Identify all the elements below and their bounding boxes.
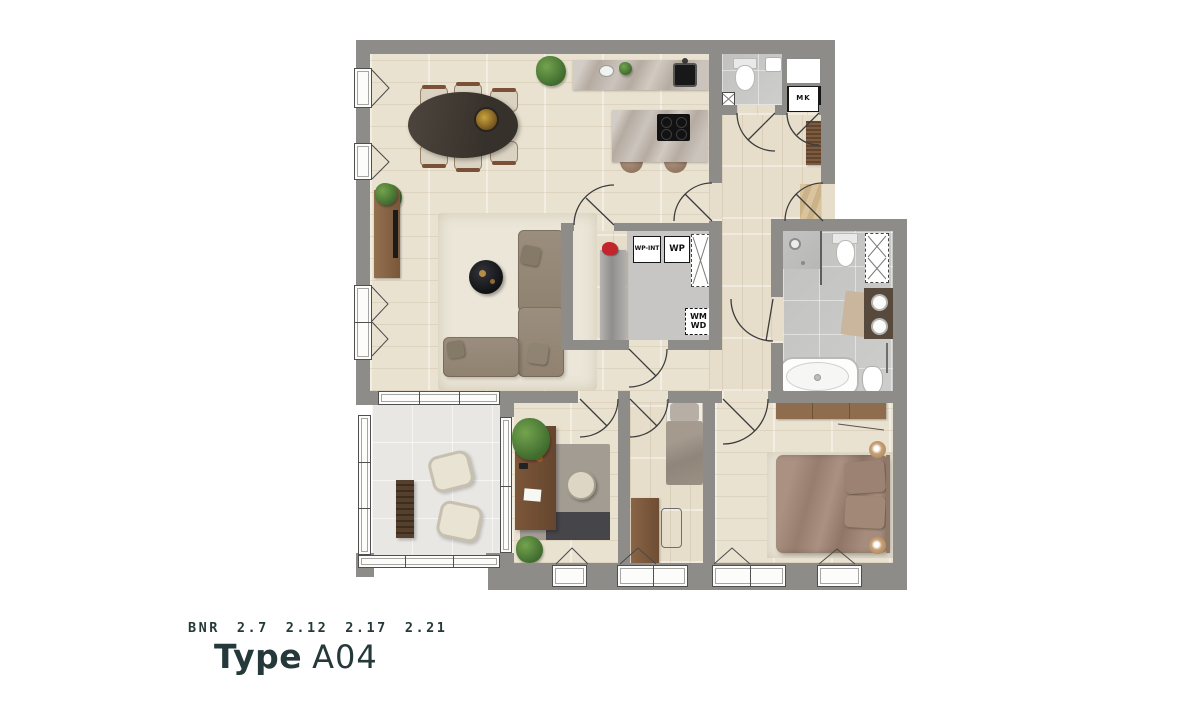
- sofa-pillow: [446, 340, 465, 359]
- door-opening-floor: [578, 391, 618, 403]
- dryer-label: WD: [691, 322, 706, 330]
- wall-corridor-south: [668, 391, 722, 403]
- window-office: [552, 565, 587, 587]
- plant: [619, 62, 632, 75]
- door-opening-floor: [771, 297, 783, 343]
- office-west-glazing: [500, 417, 512, 553]
- type-label: Type: [214, 637, 302, 676]
- balcony-glazing-left: [358, 415, 371, 555]
- office-west-stub: [500, 403, 514, 417]
- wall-bathroom-west: [771, 231, 783, 297]
- wall-toilet-bottom: [775, 105, 787, 115]
- bed-headboard: [886, 455, 890, 553]
- hall-closet: [786, 58, 821, 84]
- single-bed-duvet: [666, 421, 703, 485]
- floorplan: MK WP-INT WP WM WD: [0, 0, 1200, 724]
- wall-corridor-south: [618, 391, 630, 403]
- window-sash-divider: [750, 566, 751, 586]
- wall-bathroom-top: [771, 219, 907, 231]
- wall-living-hall-lower: [709, 221, 722, 350]
- wall-storage-north: [614, 223, 710, 231]
- bnr-number: 2.17: [345, 620, 388, 636]
- office-west-stub: [500, 553, 514, 567]
- towel-rail: [886, 343, 888, 373]
- window-sash-divider: [459, 392, 460, 404]
- balcony-bench: [396, 480, 414, 538]
- window-sash-divider: [359, 462, 370, 463]
- window-master-1: [712, 565, 786, 587]
- shower-drain: [801, 261, 805, 265]
- type-value: A04: [312, 638, 378, 676]
- balcony-glazing-bottom: [358, 555, 500, 568]
- coffee-table: [469, 260, 503, 294]
- kitchen-sink: [673, 63, 697, 87]
- bnr-line: BNR 2.7 2.12 2.17 2.21: [188, 620, 447, 636]
- wall-storage-north: [561, 223, 574, 231]
- bedroom2-desk: [631, 498, 659, 564]
- sofa-pillow: [527, 343, 550, 366]
- toilet-hand-basin: [765, 57, 782, 72]
- hob-burner: [661, 129, 672, 140]
- plant: [512, 418, 550, 460]
- entry-mat: [800, 184, 821, 220]
- duct-shaft: [691, 234, 710, 287]
- door-opening-floor: [722, 391, 768, 403]
- bathroom-shaft: [865, 233, 889, 283]
- heat-pump-indoor-label: WP-INT: [635, 246, 660, 252]
- front-door-opening-floor: [821, 184, 835, 221]
- washer-dryer-position: WM WD: [685, 308, 712, 335]
- wall-toilet-mk-separator: [782, 54, 787, 105]
- window-sash-divider: [405, 556, 406, 567]
- floorplan-page: MK WP-INT WP WM WD: [0, 0, 1200, 724]
- bed-pillow: [844, 495, 886, 529]
- meter-cupboard: MK: [786, 86, 821, 112]
- office-chair: [566, 470, 596, 500]
- window-sash-divider: [501, 486, 511, 487]
- wall-living-hall-upper: [709, 54, 722, 183]
- counter-appliance: [599, 65, 614, 77]
- bathtub-drain: [814, 374, 821, 381]
- balcony-post: [356, 391, 380, 405]
- window-sash-divider: [359, 508, 370, 509]
- window-sash-divider: [653, 566, 654, 586]
- bed-pillow: [844, 460, 886, 495]
- wall-toilet-bottom: [709, 105, 737, 115]
- window-bedroom2: [617, 565, 688, 587]
- wash-basin: [871, 294, 888, 311]
- desk-paper: [524, 488, 542, 501]
- wall-storage-west: [561, 223, 573, 350]
- sofa-pillow: [519, 244, 542, 267]
- shower-head: [789, 238, 801, 250]
- door-opening-floor: [709, 183, 722, 221]
- single-bed-pillow: [670, 403, 699, 422]
- wall-hall-east: [821, 54, 835, 184]
- tv-screen: [393, 210, 398, 258]
- wall-storage-south: [668, 340, 722, 350]
- door-opening-floor: [737, 105, 775, 115]
- heat-pump-indoor-unit: WP-INT: [633, 236, 661, 263]
- shower-glass-panel: [820, 231, 822, 285]
- plant: [375, 183, 397, 205]
- nightstand-lamp: [869, 537, 886, 554]
- dining-table: [408, 92, 518, 158]
- bnr-label: BNR: [188, 620, 220, 636]
- wall-top: [356, 40, 835, 54]
- window-left-3: [354, 285, 372, 360]
- toilet-bowl: [735, 65, 755, 91]
- window-sash-divider: [419, 392, 420, 404]
- window-left-2: [354, 143, 372, 180]
- sofa-section-corner: [518, 307, 564, 377]
- wall-bedroom2-master: [703, 403, 715, 563]
- coffee-table-decor: [490, 279, 495, 284]
- vacuum-cleaner: [602, 242, 618, 255]
- hob-burner: [676, 129, 687, 140]
- balcony-glazing-top: [378, 391, 500, 405]
- wall-storage-south: [561, 340, 629, 350]
- bnr-number: 2.7: [237, 620, 269, 636]
- bnr-number: 2.21: [405, 620, 448, 636]
- window-sash-divider: [453, 556, 454, 567]
- wall-corridor-south: [500, 391, 578, 403]
- coffee-table-decor: [479, 270, 486, 277]
- bathroom-toilet-bowl: [836, 240, 855, 267]
- desk-gadget: [519, 463, 528, 469]
- hall-south-floor: [722, 219, 771, 391]
- wall-east: [893, 219, 907, 590]
- heat-pump-label: WP: [669, 245, 685, 254]
- door-opening-floor: [628, 391, 668, 403]
- wash-basin: [871, 318, 888, 335]
- table-centerpiece-bowl: [474, 107, 499, 132]
- heat-pump-unit: WP: [664, 236, 690, 263]
- bedroom2-chair-outline: [661, 508, 682, 548]
- wall-corridor-south: [768, 391, 893, 403]
- window-sash-divider: [355, 322, 371, 323]
- sink-faucet: [682, 58, 688, 64]
- bnr-number: 2.12: [286, 620, 329, 636]
- vent-shaft-box: [722, 92, 735, 106]
- type-title: Type A04: [214, 637, 378, 676]
- wall-toilet-bottom: [819, 105, 835, 115]
- hall-connector-floor: [709, 350, 722, 391]
- wall-office-bedroom2: [618, 403, 630, 563]
- meter-cupboard-label: MK: [796, 95, 810, 102]
- hall-bench: [806, 121, 822, 165]
- hob-burner: [676, 117, 687, 128]
- sofa-section-vertical: [518, 230, 564, 312]
- plant: [516, 536, 543, 563]
- nightstand-lamp: [869, 441, 886, 458]
- window-master-2: [817, 565, 862, 587]
- tall-cabinet: [600, 250, 626, 342]
- hob-burner: [661, 117, 672, 128]
- plant: [536, 56, 566, 86]
- window-left-1: [354, 68, 372, 108]
